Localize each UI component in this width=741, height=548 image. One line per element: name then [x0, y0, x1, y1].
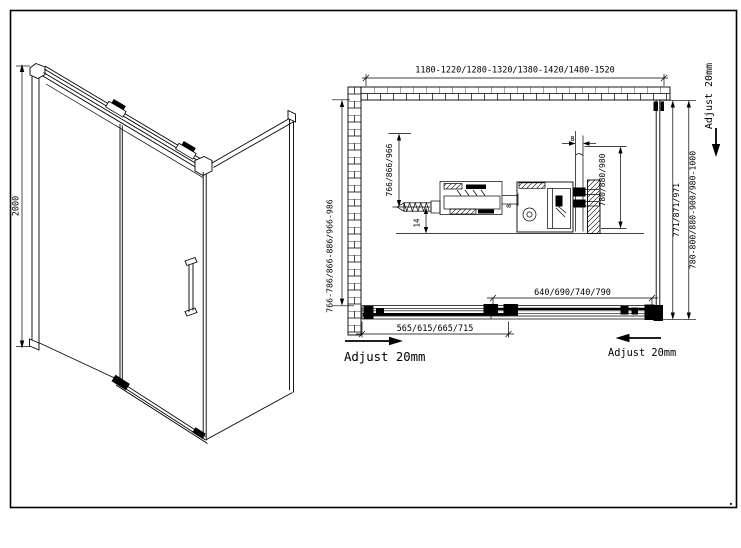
isometric-view: 2000	[12, 64, 296, 444]
adjust-note-bottom-right: Adjust 20mm	[608, 334, 676, 359]
roller-block-mid-2	[504, 304, 519, 316]
arrowhead-up	[20, 64, 24, 72]
dim-text-right-outer: 780-800/880-900/980-1000	[688, 151, 698, 269]
dim-text-glass-thickness-top: 8	[570, 135, 574, 143]
wall-profile-left	[30, 64, 46, 351]
adjust-note-bottom-left: Adjust 20mm	[344, 337, 425, 364]
end-bracket-right	[645, 305, 655, 321]
return-panel-plan	[654, 100, 665, 318]
dim-text-fixed-panel: 565/615/665/715	[397, 324, 474, 334]
bolt-2	[574, 200, 586, 208]
dim-text-bar-height: 780/880/980	[598, 153, 607, 206]
wall-bracket-top-2	[661, 102, 665, 112]
stray-dot	[730, 503, 732, 505]
adjust-label-bottom-right: Adjust 20mm	[608, 347, 676, 359]
dim-height-2000: 2000	[12, 64, 31, 349]
corner-bracket-bottom	[654, 305, 664, 321]
dim-text-height-2000: 2000	[12, 196, 22, 216]
support-housing	[517, 182, 573, 232]
wall-left-brick	[348, 87, 361, 335]
adjust-label-top-right: Adjust 20mm	[704, 63, 715, 129]
bracket-block-left	[376, 309, 384, 316]
front-glass-panels	[40, 124, 207, 441]
dim-text-floor-offset: 14	[413, 218, 422, 228]
dim-text-left-depth: 766-786/866-886/966-986	[325, 199, 335, 312]
dim-text-sliding-door: 640/690/740/790	[534, 288, 611, 298]
drawing-page: 2000	[0, 0, 741, 548]
bottom-rail	[112, 375, 208, 444]
roller-bracket-2	[176, 139, 199, 159]
technical-drawing-canvas: 2000	[0, 0, 741, 548]
dim-text-arm-height: 766/866/966	[385, 143, 394, 196]
wall-bracket-top	[654, 102, 659, 112]
top-rail	[43, 66, 212, 178]
dim-text-right-inner: 771/871/971	[671, 183, 681, 237]
bolt-1	[574, 188, 586, 197]
arrowhead-down	[20, 341, 24, 349]
wall-profile-block-left	[364, 306, 374, 319]
adjust-label-bottom-left: Adjust 20mm	[344, 350, 425, 364]
dim-right-depths: 771/871/971 780-800/880-900/980-1000	[660, 100, 698, 319]
dim-text-glass-thickness-arm: 8	[505, 204, 513, 208]
support-bar-and-wall	[574, 149, 601, 234]
dim-arm-height: 766/866/966	[385, 134, 430, 208]
page-border	[11, 11, 737, 508]
track-assembly	[362, 304, 663, 321]
adjust-arrow-right	[389, 337, 403, 346]
dim-text-overall-width: 1180-1220/1280-1320/1380-1420/1480-1520	[415, 66, 615, 76]
plan-view: 1180-1220/1280-1320/1380-1420/1480-1520 …	[325, 63, 721, 364]
break-mark	[576, 154, 584, 156]
bracket-detail: 766/866/966 14	[385, 131, 644, 234]
roller-bracket-1	[106, 97, 129, 117]
roller-block-right-2	[632, 308, 639, 315]
return-side-panel	[207, 111, 296, 440]
adjust-arrow-down	[712, 144, 720, 157]
dim-overall-width: 1180-1220/1280-1320/1380-1420/1480-1520	[362, 66, 668, 87]
roller-block-mid-1	[484, 304, 499, 316]
dim-fixed-panel: 565/615/665/715	[356, 322, 514, 338]
door-handle	[185, 258, 197, 317]
roller-block-right-1	[621, 306, 629, 315]
adjust-arrow-left	[616, 334, 630, 343]
adjust-note-top-right: Adjust 20mm	[704, 63, 720, 157]
wall-top-brick	[361, 87, 670, 100]
glass-clamp-assembly: 8	[440, 182, 518, 215]
